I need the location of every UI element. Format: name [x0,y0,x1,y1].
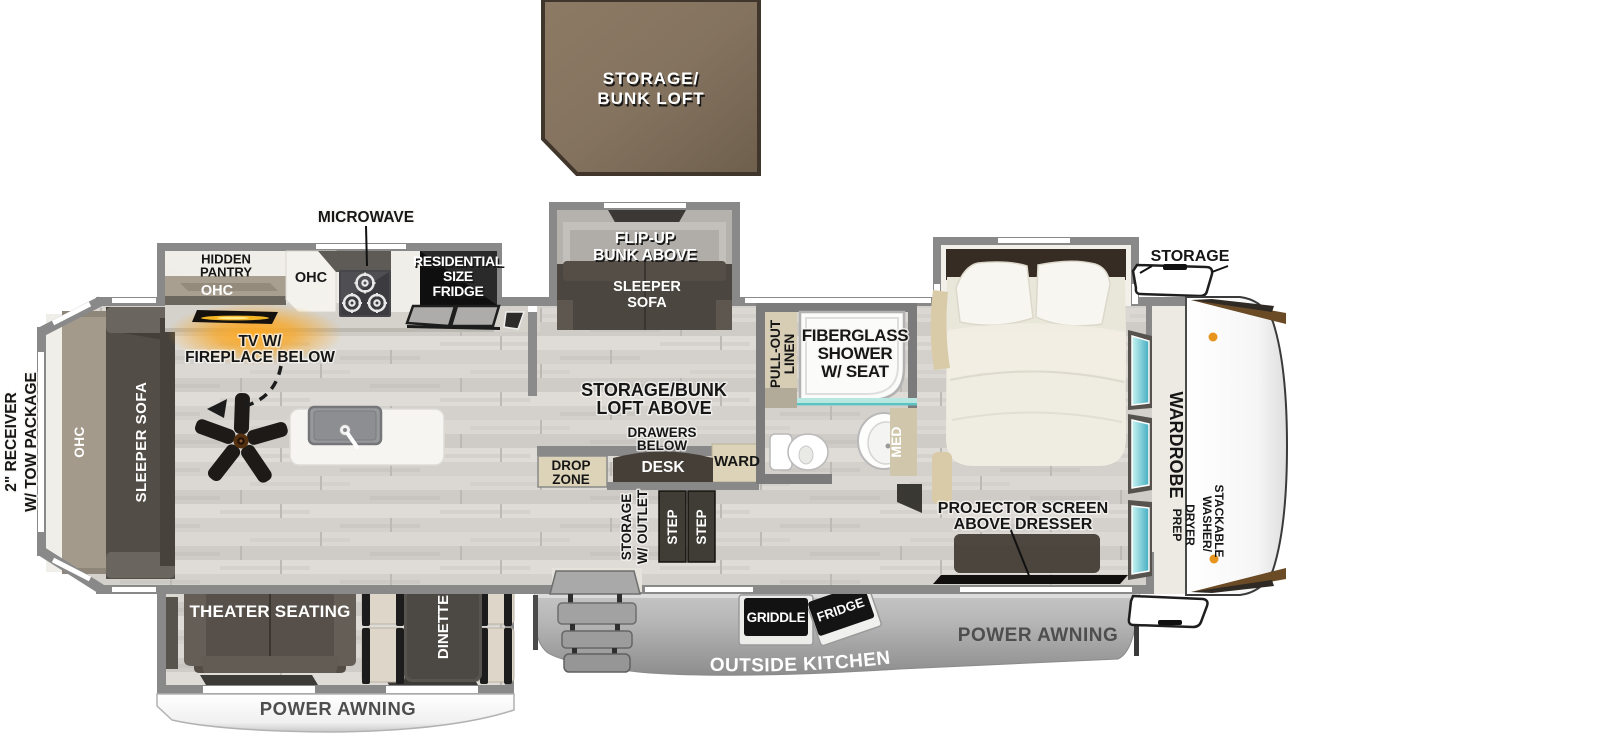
svg-text:WARD: WARD [714,453,760,470]
svg-text:ABOVE DRESSER: ABOVE DRESSER [954,516,1093,533]
svg-text:OHC: OHC [72,426,87,458]
svg-text:W/ OUTLET: W/ OUTLET [635,489,650,564]
svg-text:SHOWER: SHOWER [818,344,893,363]
svg-text:BUNK LOFT: BUNK LOFT [597,89,704,108]
svg-text:LINEN: LINEN [782,334,797,375]
svg-text:W/ SEAT: W/ SEAT [821,362,889,381]
svg-text:MICROWAVE: MICROWAVE [318,209,414,226]
svg-text:PANTRY: PANTRY [200,265,252,280]
svg-text:STORAGE/: STORAGE/ [603,69,699,88]
svg-text:SLEEPER: SLEEPER [613,279,681,295]
svg-text:BELOW: BELOW [637,438,688,453]
svg-text:FLIP-UP: FLIP-UP [615,230,675,247]
svg-text:FIREPLACE BELOW: FIREPLACE BELOW [185,349,335,366]
svg-text:GRIDDLE: GRIDDLE [747,610,806,625]
svg-text:FRIDGE: FRIDGE [432,283,483,299]
svg-text:POWER AWNING: POWER AWNING [958,625,1118,646]
svg-text:SIZE: SIZE [443,268,473,284]
svg-text:DRYER: DRYER [1183,504,1197,546]
svg-text:PROJECTOR SCREEN: PROJECTOR SCREEN [938,500,1108,517]
svg-text:PREP: PREP [1170,509,1184,542]
svg-text:WASHER/: WASHER/ [1200,496,1214,553]
svg-text:STEP: STEP [694,509,709,544]
svg-text:STORAGE/BUNK: STORAGE/BUNK [581,380,727,400]
svg-text:STEP: STEP [665,509,680,544]
svg-text:STORAGE: STORAGE [1151,248,1230,265]
svg-text:PULL-OUT: PULL-OUT [768,319,783,388]
svg-text:W/ TOW PACKAGE: W/ TOW PACKAGE [23,372,40,512]
svg-text:WARDROBE: WARDROBE [1166,392,1186,499]
svg-text:DESK: DESK [641,459,685,476]
svg-text:LOFT ABOVE: LOFT ABOVE [596,398,711,418]
svg-text:BUNK ABOVE: BUNK ABOVE [593,247,697,264]
svg-text:2" RECEIVER: 2" RECEIVER [3,392,20,492]
svg-text:SOFA: SOFA [627,295,667,311]
svg-text:OHC: OHC [201,283,234,299]
svg-text:OHC: OHC [295,270,328,286]
svg-text:STORAGE: STORAGE [619,494,634,561]
svg-text:DINETTE: DINETTE [435,595,452,659]
svg-text:ZONE: ZONE [552,472,590,487]
svg-text:POWER AWNING: POWER AWNING [260,698,416,719]
svg-text:TV W/: TV W/ [238,333,282,350]
svg-text:FIBERGLASS: FIBERGLASS [802,326,909,345]
svg-text:MED: MED [888,426,904,457]
svg-text:RESIDENTIAL: RESIDENTIAL [413,253,504,269]
svg-text:THEATER SEATING: THEATER SEATING [189,602,350,621]
svg-text:DROP: DROP [551,458,590,473]
svg-text:SLEEPER SOFA: SLEEPER SOFA [133,381,150,502]
